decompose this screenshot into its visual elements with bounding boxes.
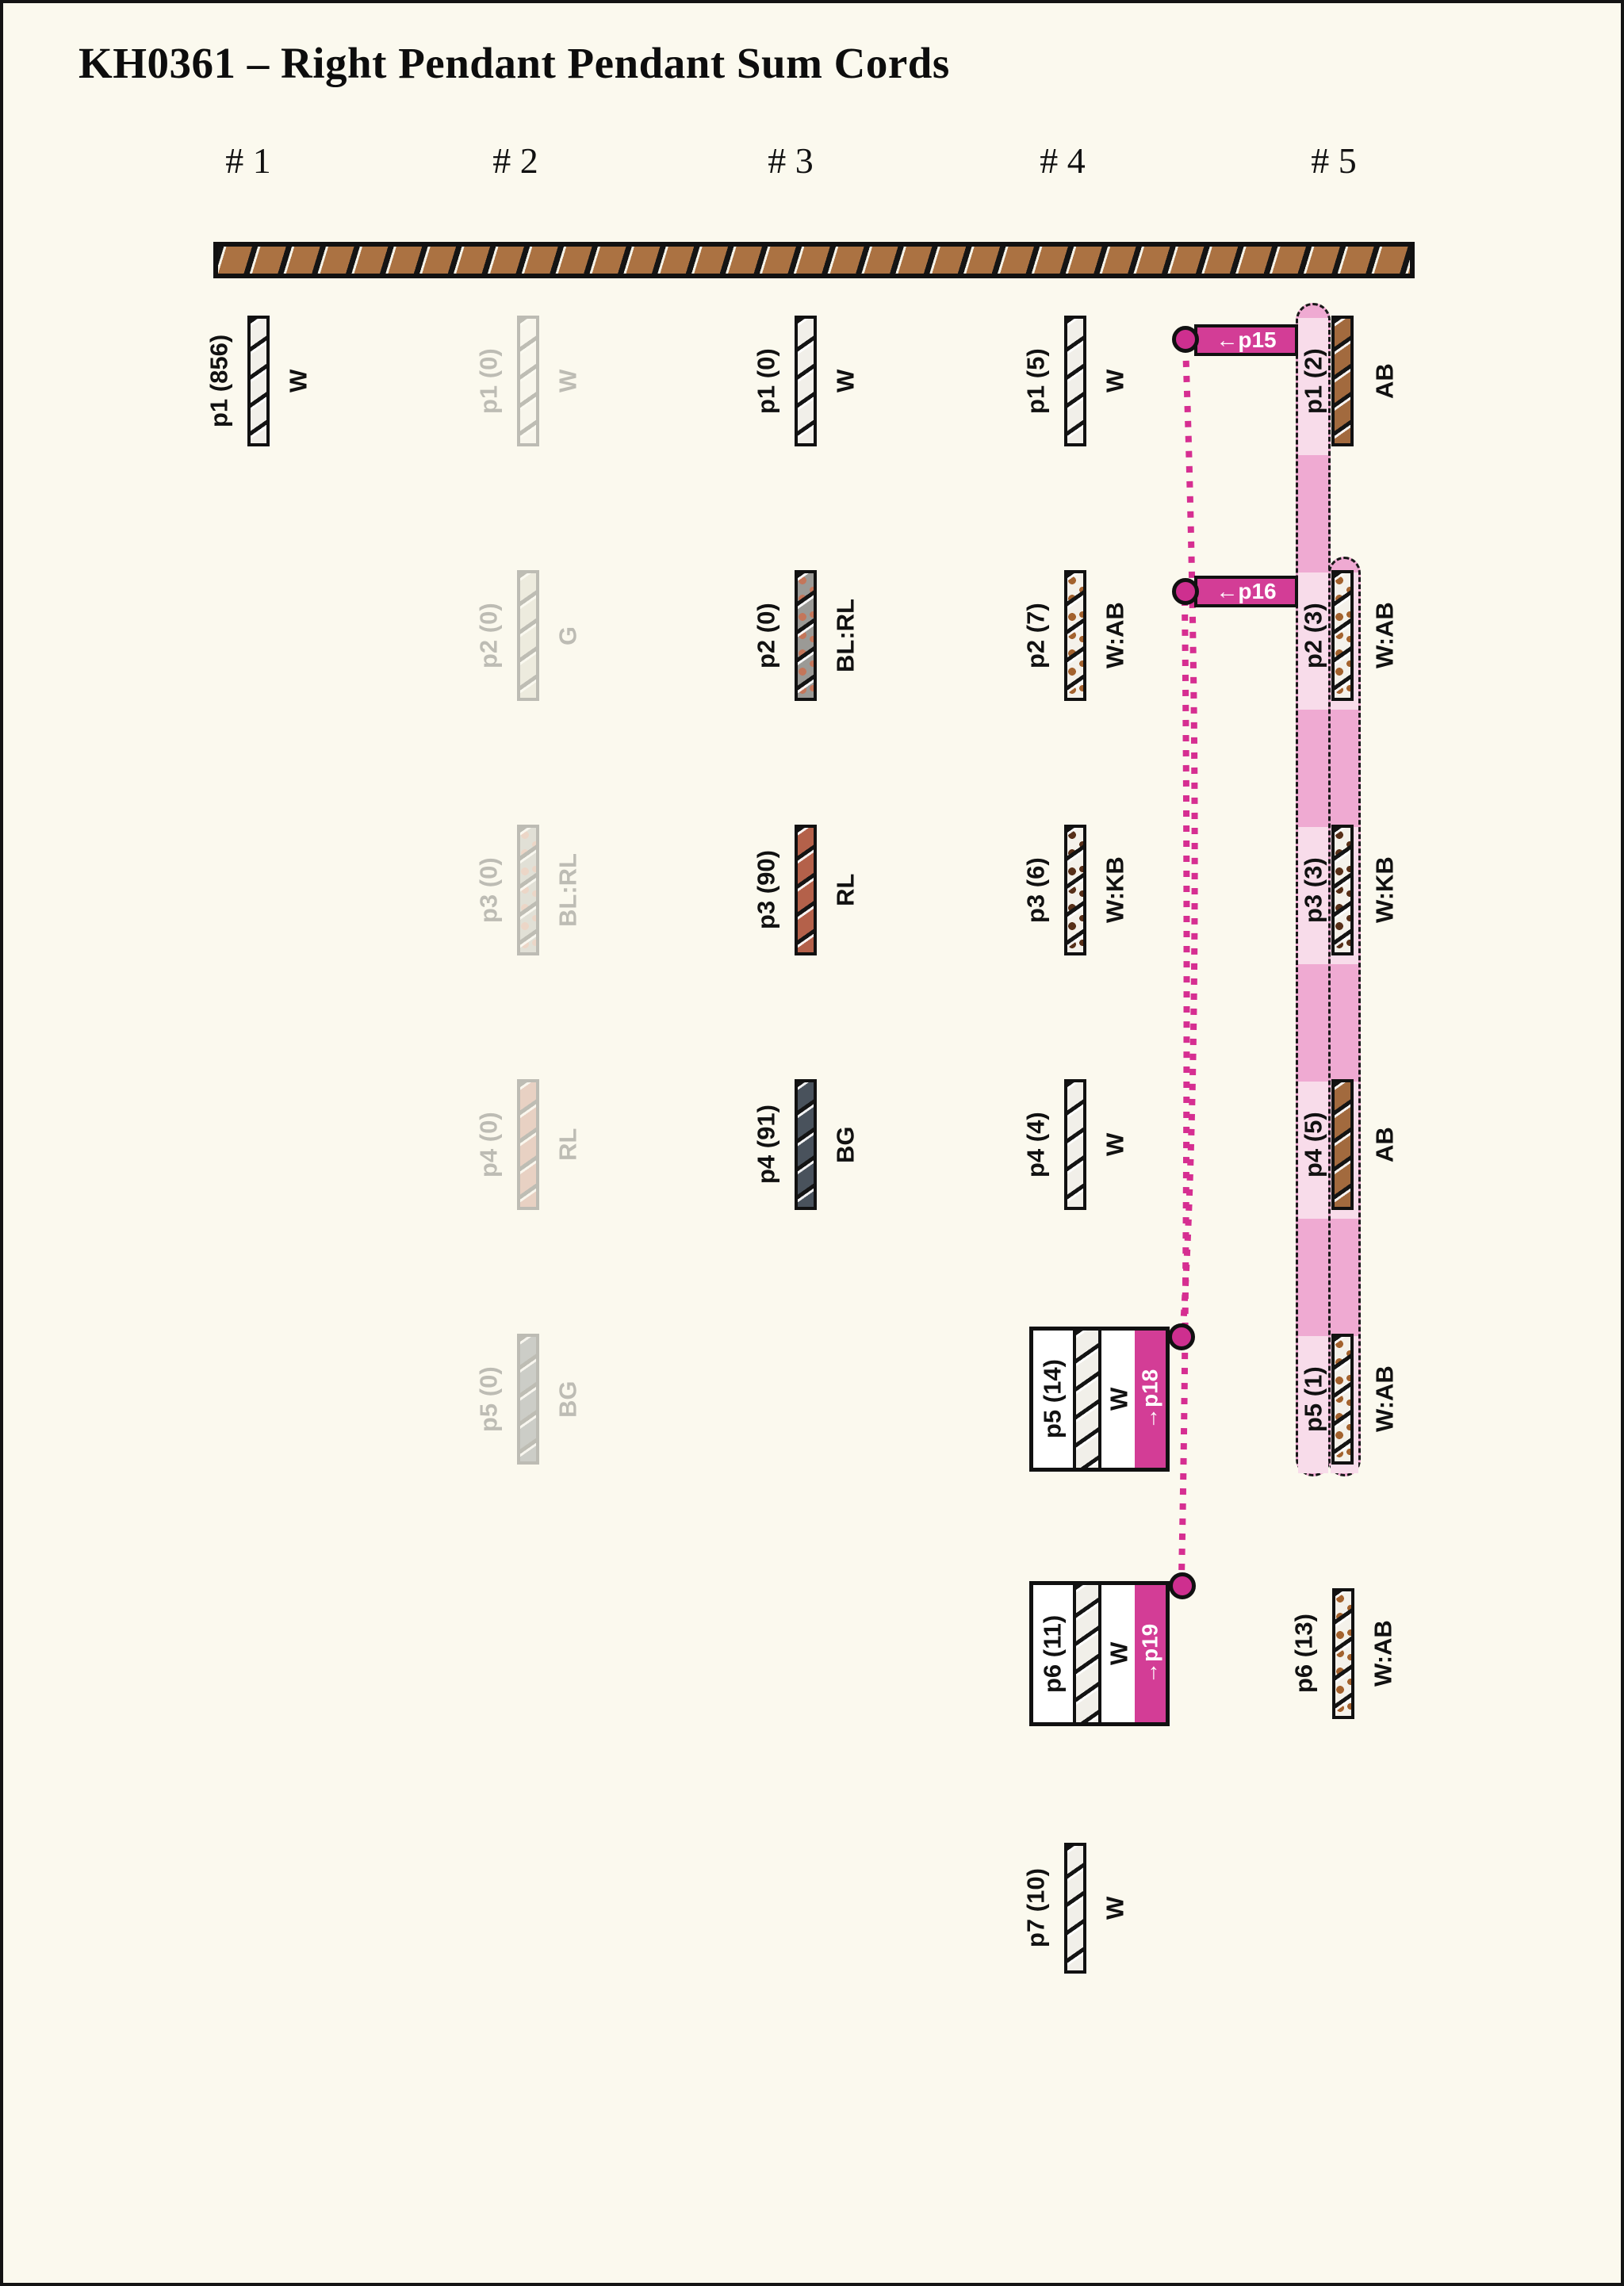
primary-cord xyxy=(213,242,1415,278)
pendant-color-code: W xyxy=(1094,1079,1136,1210)
column-header-1: # 1 xyxy=(185,140,312,182)
attachment-dot-p16 xyxy=(1172,578,1199,605)
attachment-dot-p19 xyxy=(1169,1572,1196,1599)
pendant-color-code: RL xyxy=(825,825,866,955)
pendant-bar xyxy=(795,825,817,955)
connector-line-p15-p18 xyxy=(1183,346,1195,1327)
pendant-c3-p3: p3 (90) RL xyxy=(747,825,874,955)
pendant-bar xyxy=(1332,1588,1354,1719)
pendant-bar xyxy=(517,1334,539,1465)
pendant-bar xyxy=(795,1079,817,1210)
pendant-c4-p3: p3 (6) W:KB xyxy=(1017,825,1143,955)
pendant-color-code: W:KB xyxy=(1094,825,1136,955)
pendant-bar xyxy=(517,825,539,955)
pendant-color-code: W xyxy=(1101,1585,1136,1722)
pendant-c1-p1: p1 (856) W xyxy=(200,316,327,446)
pendant-label: p3 (0) xyxy=(469,799,507,981)
marker-tag-p19: →p19 xyxy=(1135,1585,1166,1722)
pendant-c3-p1: p1 (0) W xyxy=(747,316,874,446)
pendant-label: p4 (4) xyxy=(1017,1054,1055,1235)
pendant-c4-p7: p7 (10) W xyxy=(1017,1843,1143,1974)
pendant-c3-p2: p2 (0) BL:RL xyxy=(747,570,874,701)
pendant-bar xyxy=(1073,1585,1101,1722)
pendant-color-code: BL:RL xyxy=(825,570,866,701)
pendant-c2-p4: p4 (0) RL xyxy=(469,1079,596,1210)
pendant-label: p1 (5) xyxy=(1017,290,1055,472)
khipu-diagram: KH0361 – Right Pendant Pendant Sum Cords… xyxy=(0,0,1624,2286)
pendant-label: p6 (13) xyxy=(1285,1563,1323,1744)
pendant-bar xyxy=(795,316,817,446)
pendant-bar xyxy=(1073,1331,1101,1468)
pendant-label: p4 (0) xyxy=(469,1054,507,1235)
pendant-color-code: AB xyxy=(1364,316,1405,446)
pendant-bar-c5-p1 xyxy=(1331,316,1354,446)
pendant-bar xyxy=(1064,316,1086,446)
pendant-color-code: BG xyxy=(825,1079,866,1210)
column-header-4: # 4 xyxy=(999,140,1126,182)
pendant-label: p2 (3) xyxy=(1294,546,1332,725)
attachment-dot-p18 xyxy=(1168,1323,1195,1350)
pendant-bar xyxy=(1064,1079,1086,1210)
pendant-c2-p3: p3 (0) BL:RL xyxy=(469,825,596,955)
sum-group-c4-p6: p6 (11) W →p19 xyxy=(1029,1581,1170,1726)
pendant-color-code: BL:RL xyxy=(547,825,588,955)
pendant-bar xyxy=(517,1079,539,1210)
pendant-color-code: BG xyxy=(547,1334,588,1465)
page-title: KH0361 – Right Pendant Pendant Sum Cords xyxy=(79,38,950,88)
marker-tag-p18: →p18 xyxy=(1135,1331,1166,1468)
pendant-label: p7 (10) xyxy=(1017,1817,1055,1999)
pendant-c3-p4: p4 (91) BG xyxy=(747,1079,874,1210)
column-header-3: # 3 xyxy=(727,140,854,182)
pendant-label: p1 (0) xyxy=(469,290,507,472)
pendant-bar-c5-p2 xyxy=(1331,570,1354,701)
pendant-label: p2 (0) xyxy=(747,545,785,726)
pendant-label: p3 (3) xyxy=(1294,801,1332,979)
pendant-label: p5 (0) xyxy=(469,1308,507,1490)
pendant-c2-p5: p5 (0) BG xyxy=(469,1334,596,1465)
pendant-color-code: G xyxy=(547,570,588,701)
pendant-bar-c5-p4 xyxy=(1331,1079,1354,1210)
pendant-bar xyxy=(517,570,539,701)
pendant-bar-c5-p5 xyxy=(1331,1334,1354,1465)
pendant-bar-c5-p3 xyxy=(1331,825,1354,955)
pendant-label: p3 (6) xyxy=(1017,799,1055,981)
pendant-color-code: W xyxy=(547,316,588,446)
pendant-c4-p2: p2 (7) W:AB xyxy=(1017,570,1143,701)
pendant-color-code: W:AB xyxy=(1094,570,1136,701)
pendant-label: p1 (856) xyxy=(200,290,238,472)
pendant-color-code: W:AB xyxy=(1364,1334,1405,1465)
pendant-bar xyxy=(795,570,817,701)
pendant-c4-p4: p4 (4) W xyxy=(1017,1079,1143,1210)
pendant-color-code: W xyxy=(825,316,866,446)
pendant-color-code: W:KB xyxy=(1364,825,1405,955)
pendant-c2-p2: p2 (0) G xyxy=(469,570,596,701)
pendant-label: p5 (1) xyxy=(1294,1310,1332,1488)
pendant-color-code: W xyxy=(1094,1843,1136,1974)
pendant-color-code: W xyxy=(278,316,319,446)
pendant-label: p5 (14) xyxy=(1033,1331,1071,1468)
column-header-2: # 2 xyxy=(452,140,579,182)
pendant-c5-p6: p6 (13) W:AB xyxy=(1285,1588,1411,1719)
pendant-color-code: W xyxy=(1094,316,1136,446)
marker-box-p16: ←p16 xyxy=(1194,576,1298,607)
pendant-label: p2 (0) xyxy=(469,545,507,726)
marker-box-p15: ←p15 xyxy=(1194,324,1298,356)
pendant-bar xyxy=(1064,570,1086,701)
pendant-bar xyxy=(247,316,270,446)
pendant-bar xyxy=(517,316,539,446)
column-header-5: # 5 xyxy=(1270,140,1397,182)
pendant-color-code: W:AB xyxy=(1364,570,1405,701)
pendant-c2-p1: p1 (0) W xyxy=(469,316,596,446)
pendant-c4-p1: p1 (5) W xyxy=(1017,316,1143,446)
pendant-color-code: AB xyxy=(1364,1079,1405,1210)
pendant-label: p3 (90) xyxy=(747,799,785,981)
pendant-label: p4 (91) xyxy=(747,1054,785,1235)
pendant-label: p1 (0) xyxy=(747,290,785,472)
pendant-bar xyxy=(1064,1843,1086,1974)
connector-line-p16-p19 xyxy=(1182,599,1187,1576)
pendant-color-code: W:AB xyxy=(1362,1588,1404,1719)
pendant-label: p4 (5) xyxy=(1294,1055,1332,1234)
pendant-color-code: RL xyxy=(547,1079,588,1210)
pendant-label: p6 (11) xyxy=(1033,1585,1071,1722)
pendant-color-code: W xyxy=(1101,1331,1136,1468)
sum-group-c4-p5: p5 (14) W →p18 xyxy=(1029,1327,1170,1472)
attachment-dot-p15 xyxy=(1172,326,1199,353)
pendant-label: p2 (7) xyxy=(1017,545,1055,726)
pendant-bar xyxy=(1064,825,1086,955)
pendant-label: p1 (2) xyxy=(1294,292,1332,470)
